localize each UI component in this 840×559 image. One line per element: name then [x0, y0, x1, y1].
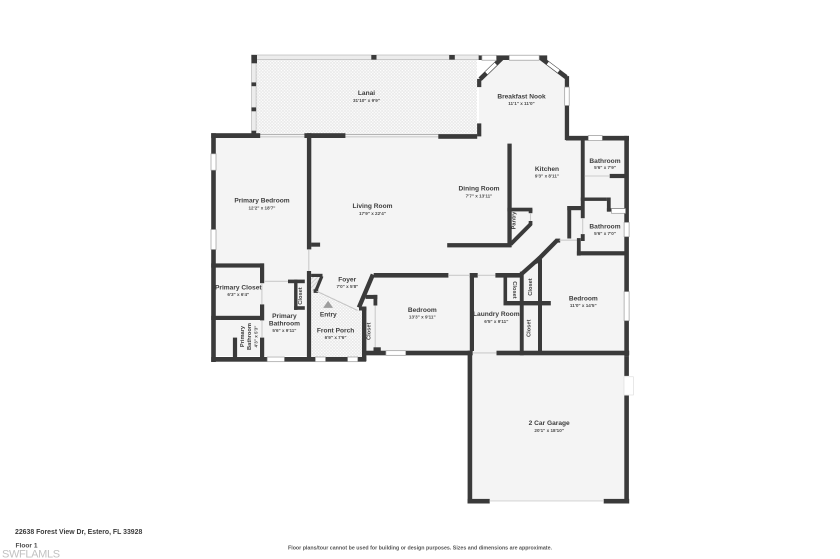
- svg-text:6'5" x 9'11": 6'5" x 9'11": [484, 319, 508, 324]
- svg-text:Closet: Closet: [527, 320, 533, 337]
- svg-text:Bedroom: Bedroom: [569, 296, 598, 303]
- svg-text:7'7" x 13'11": 7'7" x 13'11": [466, 193, 493, 198]
- svg-text:Floor plans/tour cannot be use: Floor plans/tour cannot be used for buil…: [288, 546, 553, 552]
- svg-text:Lanai: Lanai: [358, 90, 375, 97]
- svg-text:22638 Forest View Dr, Estero,: 22638 Forest View Dr, Estero, FL 33928: [15, 529, 142, 536]
- svg-text:Kitchen: Kitchen: [535, 166, 559, 173]
- svg-text:7'0" x 5'8": 7'0" x 5'8": [336, 284, 358, 289]
- svg-text:Bathroom: Bathroom: [589, 158, 620, 165]
- svg-text:6'3" x 6'4": 6'3" x 6'4": [227, 292, 249, 297]
- svg-text:17'9" x 22'4": 17'9" x 22'4": [359, 211, 386, 216]
- svg-text:Primary Closet: Primary Closet: [215, 284, 262, 291]
- svg-text:Foyer: Foyer: [338, 276, 356, 283]
- svg-text:6'9" x 7'6": 6'9" x 7'6": [325, 335, 347, 340]
- svg-text:Laundry Room: Laundry Room: [473, 311, 520, 318]
- svg-text:12'2" x 18'7": 12'2" x 18'7": [249, 206, 276, 211]
- svg-text:Closet: Closet: [511, 281, 517, 298]
- svg-text:Closet: Closet: [366, 323, 372, 340]
- svg-text:2 Car Garage: 2 Car Garage: [529, 420, 570, 427]
- svg-text:Closet: Closet: [528, 278, 534, 295]
- svg-text:4'3" x 5'3": 4'3" x 5'3": [254, 326, 259, 348]
- svg-text:Pantry: Pantry: [512, 211, 518, 230]
- svg-text:13'3" x 9'11": 13'3" x 9'11": [409, 315, 436, 320]
- svg-text:20'1" x 18'10": 20'1" x 18'10": [534, 428, 564, 433]
- svg-text:11'0" x 14'5": 11'0" x 14'5": [570, 303, 597, 308]
- svg-text:Breakfast Nook: Breakfast Nook: [497, 93, 546, 100]
- svg-text:Closet: Closet: [298, 287, 304, 304]
- svg-text:Bedroom: Bedroom: [408, 307, 437, 314]
- svg-text:Primary: Primary: [272, 313, 297, 320]
- svg-text:Primary: Primary: [240, 325, 246, 347]
- svg-text:Front Porch: Front Porch: [317, 327, 354, 334]
- svg-text:Bathroom: Bathroom: [269, 320, 300, 327]
- svg-text:SWFLAMLS: SWFLAMLS: [2, 548, 60, 559]
- svg-text:5'6" x 7'0": 5'6" x 7'0": [594, 231, 616, 236]
- svg-text:Bathroom: Bathroom: [589, 224, 620, 231]
- svg-text:Entry: Entry: [320, 312, 337, 319]
- svg-text:5'6" x 9'11": 5'6" x 9'11": [272, 328, 296, 333]
- svg-text:9'3" x 8'11": 9'3" x 8'11": [535, 173, 559, 178]
- svg-text:Primary Bedroom: Primary Bedroom: [234, 198, 289, 205]
- svg-text:Dining Room: Dining Room: [458, 185, 499, 192]
- svg-text:Living Room: Living Room: [353, 203, 393, 210]
- svg-text:Bathroom: Bathroom: [247, 323, 253, 350]
- svg-text:5'6" x 7'9": 5'6" x 7'9": [594, 165, 616, 170]
- svg-text:31'10" x 9'9": 31'10" x 9'9": [353, 98, 380, 103]
- svg-text:11'1" x 11'0": 11'1" x 11'0": [508, 101, 534, 106]
